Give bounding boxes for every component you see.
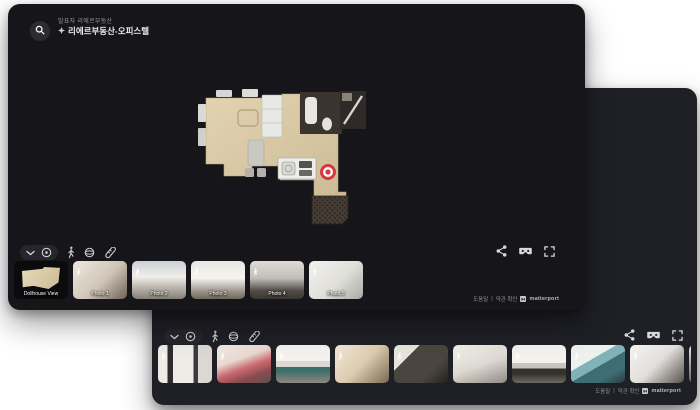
walk-icon [194,263,199,281]
thumbnail-dollhouse[interactable]: Dollhouse View [14,261,68,299]
space-title: 리에르부동산-오피스텔 [68,25,149,37]
help-link[interactable]: 도움말 [473,295,488,303]
measure-icon[interactable] [248,331,260,343]
thumbnail-photo[interactable]: Photo 4 [250,261,304,299]
search-button[interactable] [30,21,50,41]
front-utility-toolbar [496,245,555,257]
front-footer: 도움말 | 약관 확인 matterport [473,295,559,303]
walk-icon [135,263,140,281]
back-utility-toolbar [624,329,683,341]
walk-icon[interactable] [211,330,219,343]
thumbnail-caption: Dollhouse View [14,291,68,297]
front-tour-window: 발표자 리에르부동산 리에르부동산-오피스텔 [8,4,585,310]
dollhouse-view-icon[interactable] [228,331,239,342]
walk-icon [633,347,638,365]
footer-divider: | [491,296,492,302]
thumbnail-photo[interactable]: Photo 5 [309,261,363,299]
footer-divider: | [613,388,614,394]
measure-icon[interactable] [104,247,116,259]
walk-icon [312,263,317,281]
thumbnail-caption: Photo 1 [73,291,127,297]
view-mode-pill[interactable] [20,245,58,260]
walk-icon [161,347,166,365]
thumbnail-photo[interactable] [158,345,212,383]
matterport-brand-name: matterport [651,388,681,394]
space-pin-icon [58,26,65,36]
back-thumbnail-strip [158,345,691,385]
terms-link[interactable]: 약관 확인 [496,295,518,303]
thumbnail-photo[interactable]: Photo 1 [73,261,127,299]
thumbnail-photo[interactable]: Photo 3 [191,261,245,299]
search-icon [35,22,45,40]
walk-icon [253,263,258,281]
walk-icon [515,347,520,365]
fullscreen-icon[interactable] [672,330,683,341]
thumbnail-photo[interactable] [453,345,507,383]
share-icon[interactable] [624,329,635,341]
walk-icon [76,263,81,281]
walk-icon [574,347,579,365]
views-icon[interactable] [185,331,196,342]
position-marker [320,164,336,180]
walk-icon[interactable] [67,246,75,259]
back-view-toolbar [164,329,260,344]
thumbnail-caption: Photo 2 [132,291,186,297]
help-link[interactable]: 도움말 [595,387,610,395]
thumbnail-caption: Photo 4 [250,291,304,297]
thumbnail-photo[interactable] [512,345,566,383]
matterport-brand-name: matterport [529,296,559,302]
views-icon[interactable] [41,247,52,258]
thumbnail-photo[interactable] [571,345,625,383]
space-title-row: 리에르부동산-오피스텔 [58,25,149,37]
thumbnail-photo[interactable] [335,345,389,383]
matterport-logo [520,296,526,302]
chevron-down-icon[interactable] [26,250,35,256]
matterport-logo [642,388,648,394]
thumbnail-photo[interactable] [689,345,691,383]
back-footer: 도움말 | 약관 확인 matterport [595,387,681,395]
walk-icon [338,347,343,365]
walk-icon [456,347,461,365]
terms-link[interactable]: 약관 확인 [618,387,640,395]
walk-icon [279,347,284,365]
dollhouse-view-icon[interactable] [84,247,95,258]
walk-icon [397,347,402,365]
thumbnail-photo[interactable] [217,345,271,383]
share-icon[interactable] [496,245,507,257]
mini-floorplan [22,267,60,289]
thumbnail-caption: Photo 3 [191,291,245,297]
vr-headset-icon[interactable] [647,331,660,340]
thumbnail-photo[interactable] [276,345,330,383]
fullscreen-icon[interactable] [544,246,555,257]
vr-headset-icon[interactable] [519,247,532,256]
thumbnail-caption: Photo 5 [309,291,363,297]
view-mode-pill[interactable] [164,329,202,344]
chevron-down-icon[interactable] [170,334,179,340]
thumbnail-photo[interactable] [394,345,448,383]
presenter-label: 발표자 리에르부동산 [58,16,112,25]
front-view-toolbar [20,245,116,260]
thumbnail-photo[interactable]: Photo 2 [132,261,186,299]
thumbnail-photo[interactable] [630,345,684,383]
walk-icon [220,347,225,365]
floorplan-view[interactable] [196,84,368,232]
